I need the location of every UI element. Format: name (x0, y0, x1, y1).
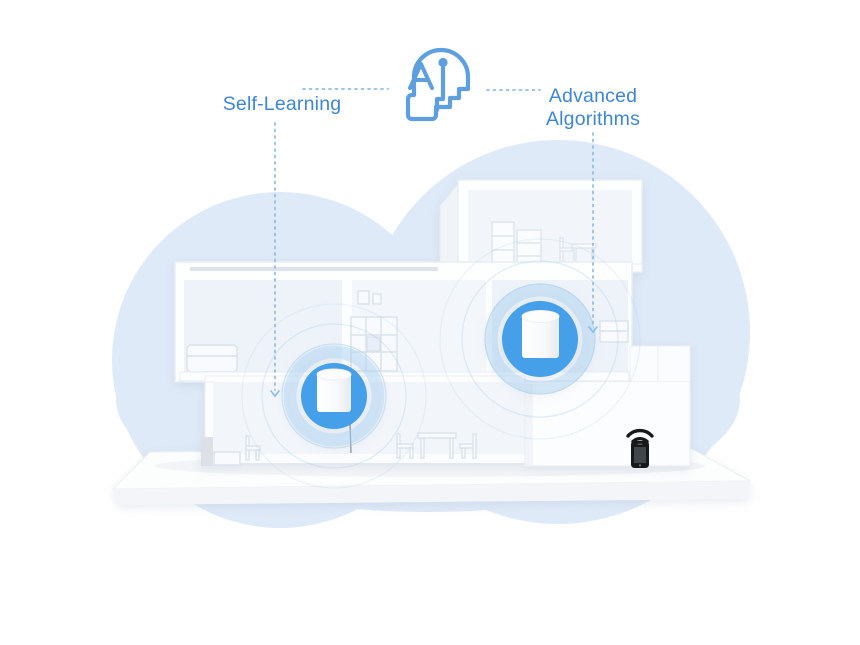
scene-illustration (0, 0, 860, 645)
smartphone-icon (631, 441, 649, 468)
mesh-unit-left (290, 352, 378, 440)
mesh-unit-right (491, 290, 589, 388)
advanced-algorithms-label: Advanced Algorithms (531, 85, 655, 131)
self-learning-label: Self-Learning (200, 93, 364, 116)
marketing-figure: Self-Learning Advanced Algorithms (0, 0, 860, 645)
ai-head-icon (408, 50, 468, 119)
